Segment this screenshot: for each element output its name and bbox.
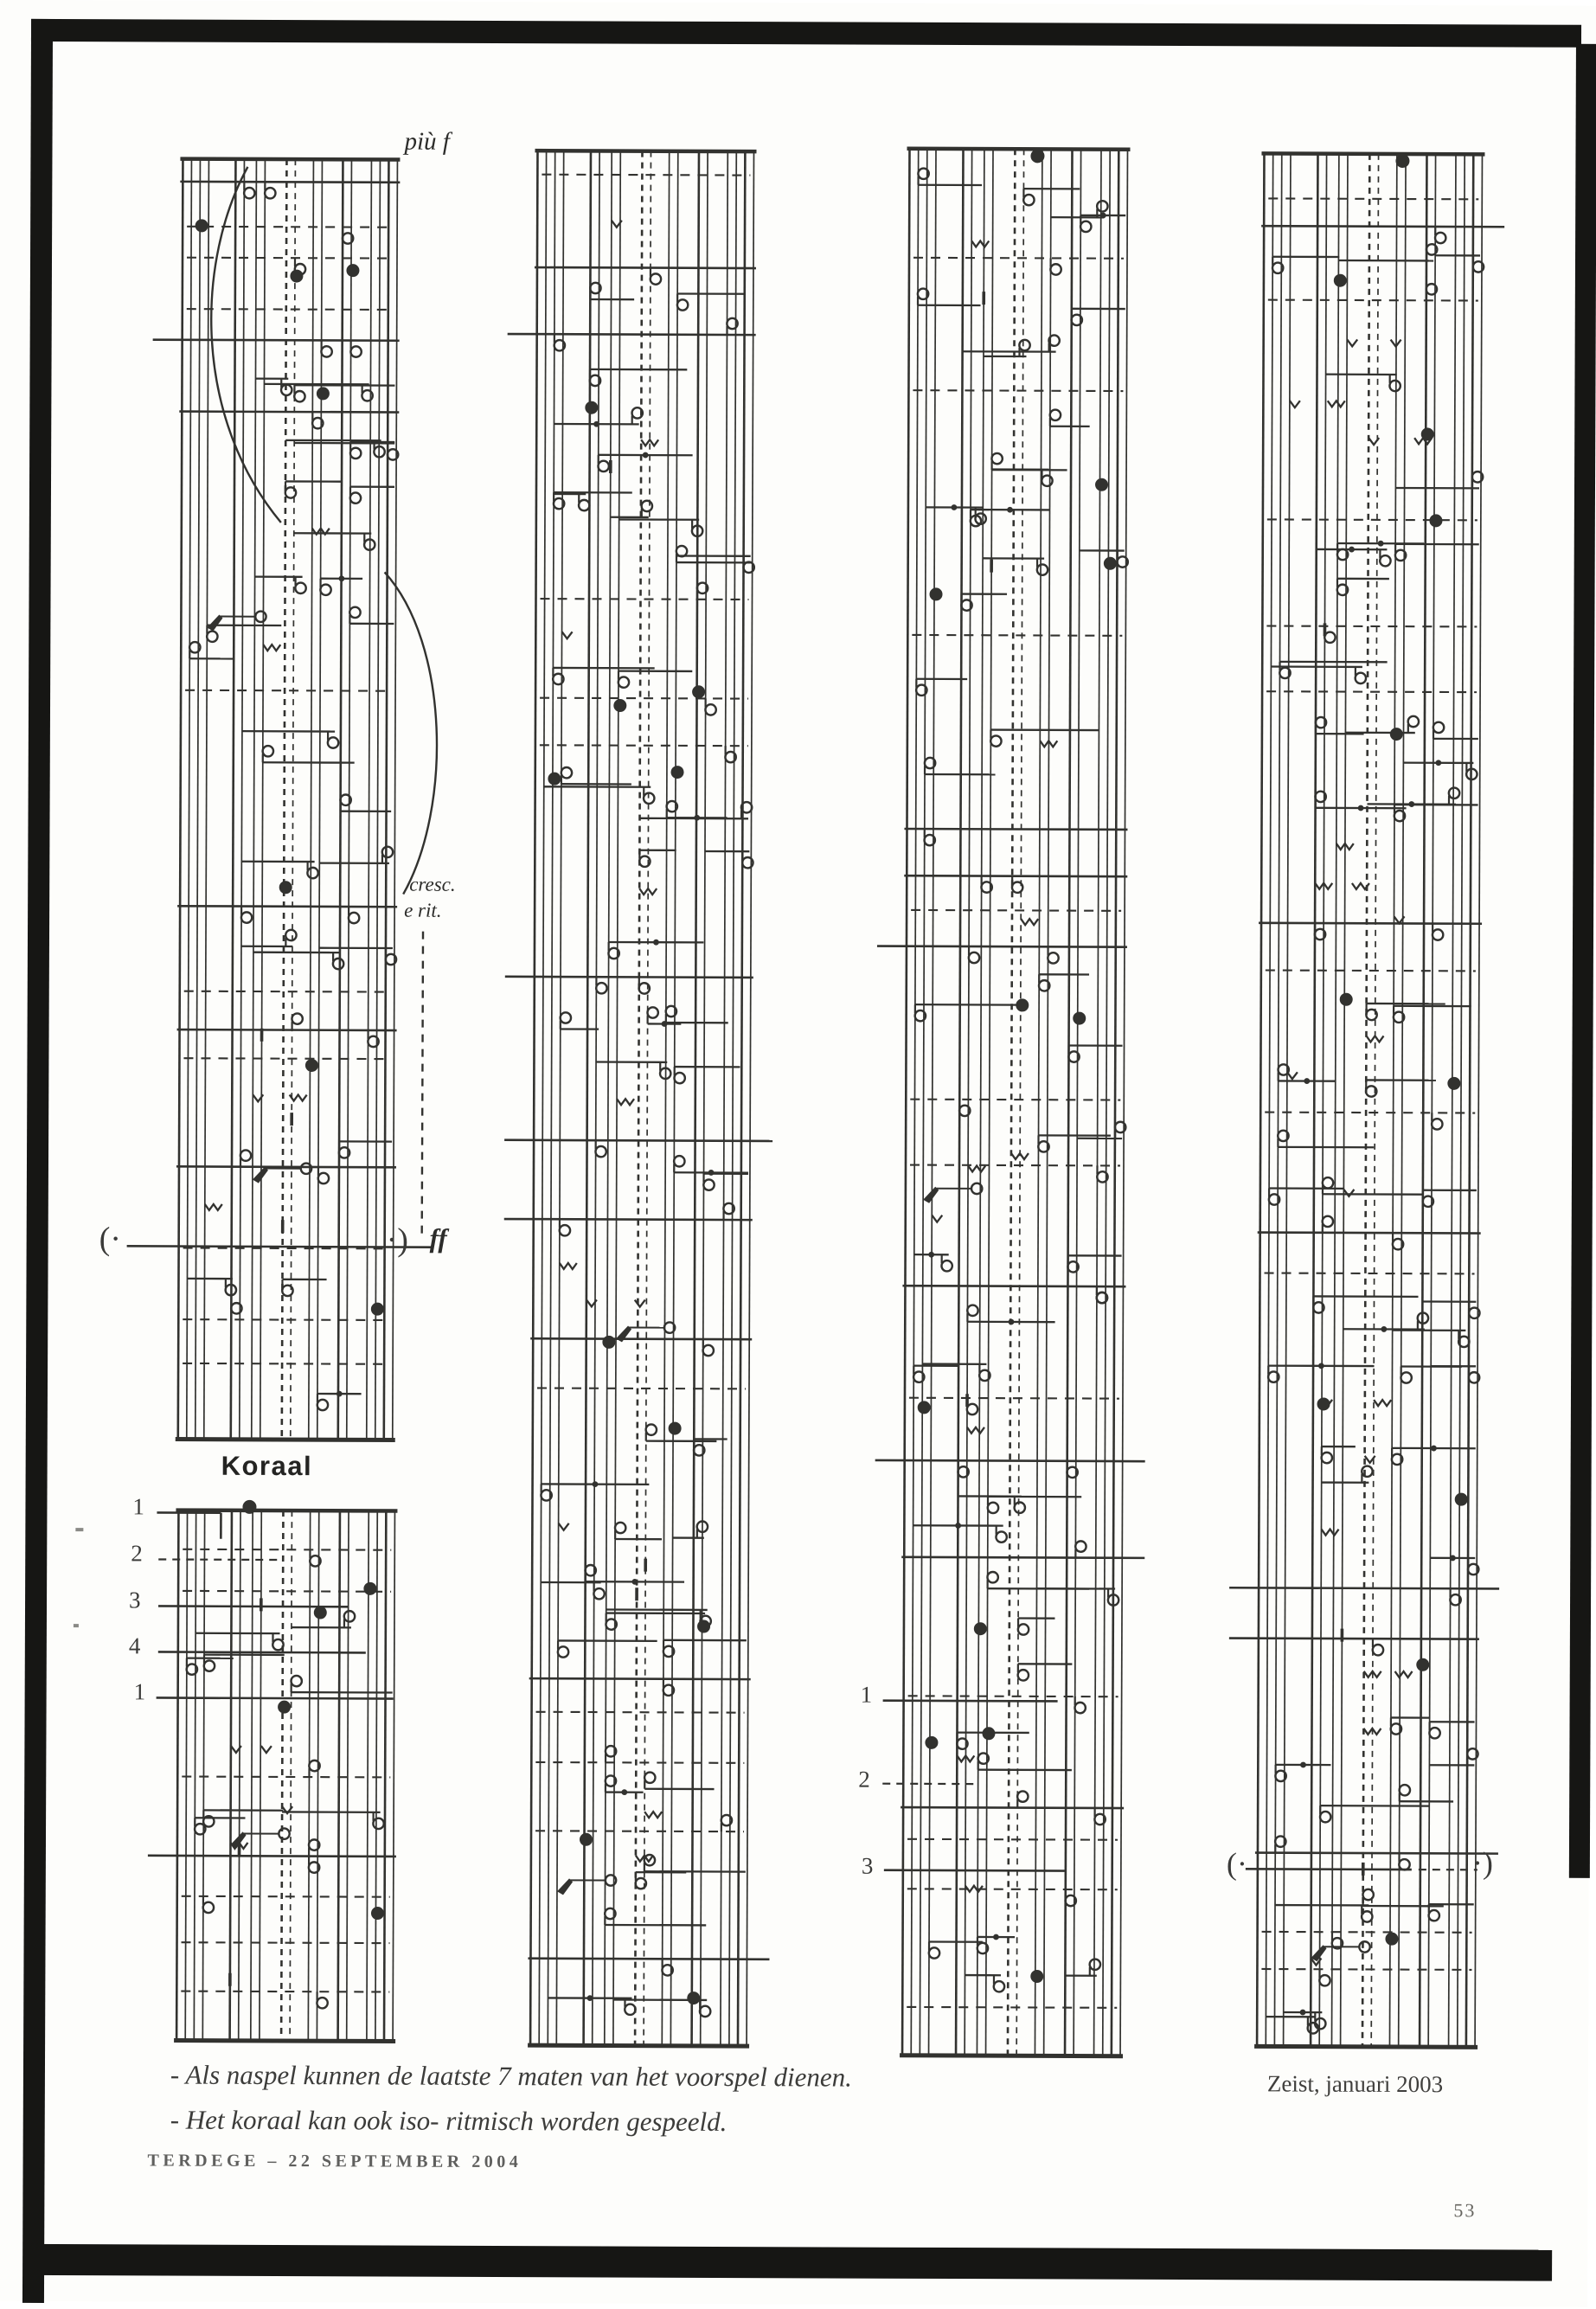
measure-number-left-5: 1 (134, 1678, 146, 1705)
tempo-marking-cresc: cresc. (409, 874, 456, 896)
measure-number-right-2: 2 (858, 1767, 870, 1793)
measure-number-left-2: 2 (131, 1540, 143, 1567)
measure-number-left-4: 4 (129, 1632, 141, 1659)
measure-number-left-1: 1 (132, 1493, 144, 1520)
scan-speck (75, 1528, 83, 1531)
score-notation (0, 0, 1596, 2307)
measure-number-right-3: 3 (862, 1853, 874, 1880)
journal-footer: TERDEGE – 22 SEPTEMBER 2004 (148, 2151, 522, 2172)
measure-number-right-1: 1 (861, 1682, 873, 1709)
tempo-marking-e-rit: e rit. (404, 900, 442, 922)
repeat-paren-close-system4: ·) (1472, 1844, 1493, 1881)
footnote-line-2: - Het koraal kan ook iso- ritmisch worde… (170, 2105, 727, 2138)
repeat-paren-open-system1: (· (99, 1220, 121, 1258)
dynamic-marking-piu-f: più f (404, 128, 450, 157)
dynamic-marking-ff: ff (430, 1223, 447, 1254)
measure-number-left-3: 3 (129, 1587, 141, 1613)
scan-speck (74, 1624, 79, 1627)
footnote-line-1: - Als naspel kunnen de laatste 7 maten v… (170, 2060, 852, 2094)
page-number: 53 (1453, 2199, 1476, 2222)
place-date: Zeist, januari 2003 (1267, 2070, 1443, 2098)
section-title-koraal: Koraal (221, 1451, 313, 1482)
scanned-music-page: più f cresc. e rit. (· ·) ff Koraal 1 2 … (0, 0, 1596, 2307)
repeat-paren-open-system4: (· (1227, 1845, 1247, 1882)
scan-frame-bottom-edge (28, 2244, 1552, 2281)
repeat-paren-close-system1: ·) (387, 1221, 408, 1259)
